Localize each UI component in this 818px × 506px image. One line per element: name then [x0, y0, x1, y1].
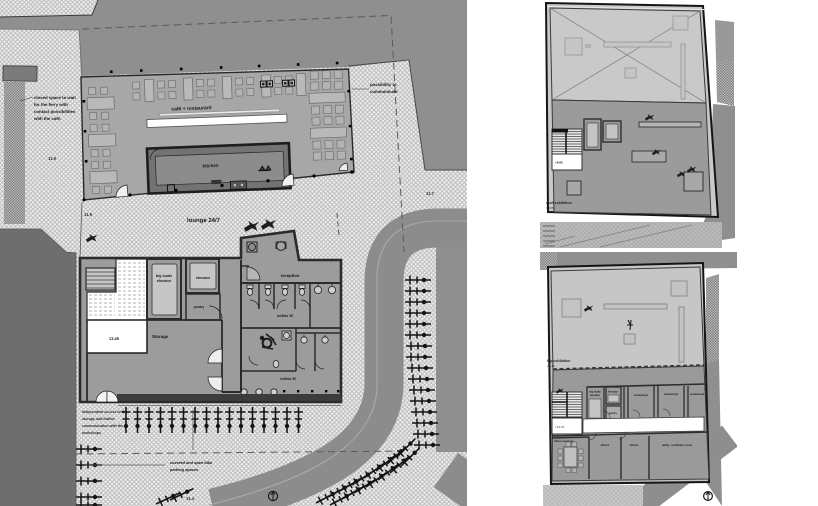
svg-text:toilets W: toilets W: [277, 314, 293, 318]
svg-text:big exhibition: big exhibition: [547, 359, 570, 363]
svg-text:workshop1: workshop1: [633, 394, 649, 397]
svg-text:pantry: pantry: [609, 412, 617, 415]
svg-text:with the café.: with the café.: [33, 116, 61, 121]
svg-text:11.9: 11.9: [48, 156, 57, 161]
svg-text:contact possibilities: contact possibilities: [34, 109, 76, 114]
svg-text:communication with the: communication with the: [82, 424, 123, 428]
svg-text:elevator: elevator: [590, 394, 600, 397]
svg-text:+14.45: +14.45: [555, 425, 565, 429]
svg-text:elevator: elevator: [608, 391, 618, 394]
svg-text:Storage: Storage: [152, 334, 169, 339]
svg-text:reception: reception: [281, 273, 300, 278]
svg-text:pantry: pantry: [194, 305, 205, 309]
svg-text:covered and open bike: covered and open bike: [170, 460, 213, 465]
svg-text:11.4: 11.4: [186, 496, 195, 501]
svg-text:independent access to the: independent access to the: [82, 410, 127, 414]
svg-text:+9.65: +9.65: [555, 161, 563, 165]
svg-text:craft exhibition: craft exhibition: [546, 201, 572, 205]
svg-text:+9.65: +9.65: [546, 206, 554, 210]
svg-text:+4.45: +4.45: [547, 364, 555, 368]
svg-text:elevator: elevator: [157, 279, 172, 283]
svg-text:11.9: 11.9: [84, 212, 93, 217]
svg-text:office/ meetings: office/ meetings: [554, 440, 574, 443]
svg-text:storage and further: storage and further: [82, 417, 116, 421]
svg-text:workshops: workshops: [81, 431, 101, 435]
svg-text:13.45: 13.45: [109, 336, 120, 341]
svg-text:utility / ventilation room: utility / ventilation room: [662, 444, 693, 447]
svg-text:11.7: 11.7: [426, 191, 435, 196]
svg-text:parking spaces: parking spaces: [170, 467, 198, 472]
svg-text:workshop3: workshop3: [689, 393, 705, 396]
svg-text:for the ferry with: for the ferry with: [34, 102, 68, 107]
svg-text:workshop2: workshop2: [663, 393, 679, 396]
svg-text:communicate: communicate: [370, 89, 398, 94]
svg-text:kitchen: kitchen: [203, 163, 219, 169]
svg-text:closed space to wait: closed space to wait: [34, 95, 76, 100]
svg-text:big loads: big loads: [156, 274, 172, 278]
svg-text:possibility to: possibility to: [370, 82, 397, 87]
svg-text:office2: office2: [630, 444, 639, 447]
svg-text:toilets M: toilets M: [280, 377, 295, 381]
svg-text:elevator: elevator: [196, 276, 211, 280]
svg-text:office1: office1: [601, 444, 610, 447]
svg-text:lounge 24/7: lounge 24/7: [187, 217, 221, 224]
